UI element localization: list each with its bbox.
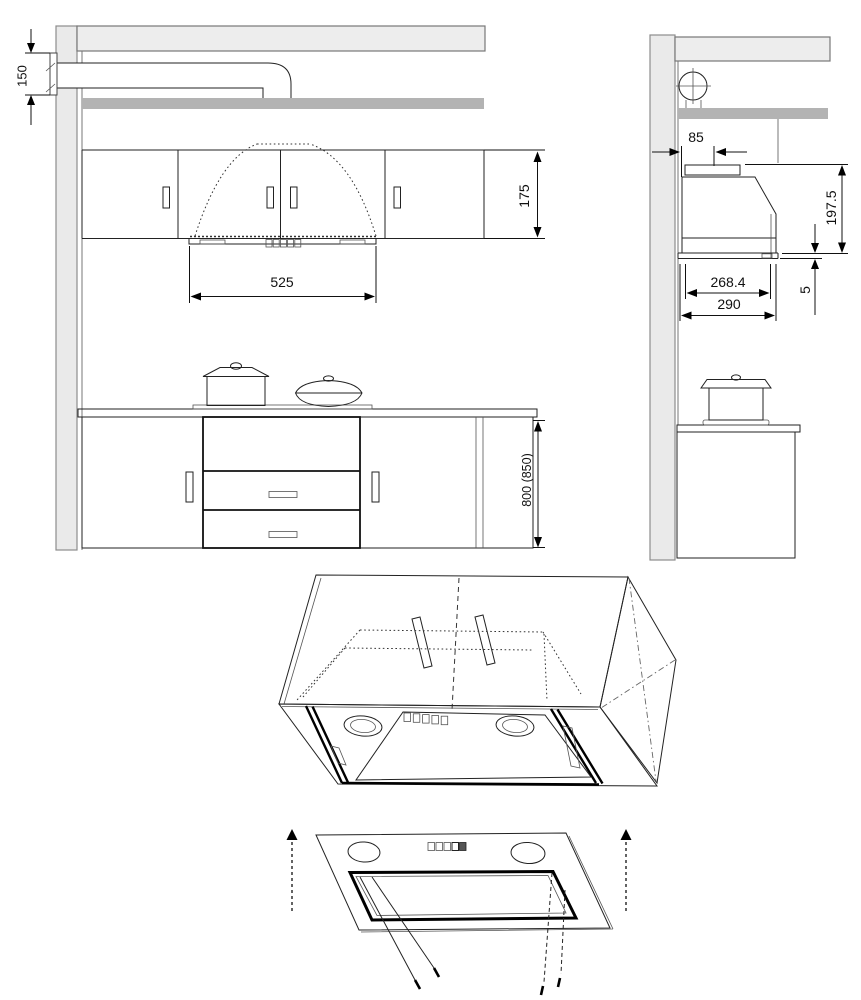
dim-175-extension-lines (484, 150, 545, 239)
lamp-outer-ring (495, 714, 535, 738)
dim-268-arrow-right (759, 289, 770, 297)
lamp-ring (510, 841, 545, 864)
lamp-inner-ring (350, 718, 376, 734)
dim-175-arrow-up (534, 152, 542, 163)
dim-800-arrow-down (534, 537, 542, 548)
screw-tip (541, 986, 543, 995)
wok-pan (296, 376, 363, 407)
duct-outline-bottom (57, 88, 263, 98)
drawer-unit (203, 417, 360, 548)
cabinet-right-face (600, 577, 676, 783)
dim-290-label: 290 (717, 296, 741, 312)
control-button (273, 240, 279, 248)
control-button (413, 714, 420, 723)
underside-outline (279, 704, 657, 786)
dim-upper-cabinet-height: 175 (484, 150, 545, 239)
frame-strip-bottom (342, 783, 599, 785)
dim-800-label: 800 (850) (520, 453, 534, 507)
hidden-hood-dotted (297, 630, 581, 701)
up-arrow-left (287, 829, 298, 840)
cabinet-left-edge-double (284, 578, 321, 704)
dim-bottom-gap: 5 (780, 224, 822, 315)
right-face-diagonals (601, 578, 675, 781)
door-handle (186, 472, 193, 502)
filter-frame (350, 872, 576, 921)
frame-strip-left (306, 706, 349, 784)
lamp-right (495, 714, 535, 738)
control-button (432, 715, 439, 724)
pot-lid-knob (231, 363, 242, 369)
control-buttons-iso (404, 713, 448, 725)
base-cabinet (82, 417, 533, 548)
front-soffit (82, 98, 484, 109)
control-button (295, 240, 301, 248)
dim-268-arrow-left (687, 289, 698, 297)
control-buttons (266, 240, 301, 248)
dim-197-label: 197.5 (823, 190, 839, 225)
drawer-handle (269, 492, 297, 498)
control-button (404, 713, 411, 722)
worktop (78, 409, 537, 417)
dim-290-arrow-left (681, 312, 692, 320)
door-handle (291, 187, 298, 208)
front-wall (56, 26, 77, 550)
dim-body-depth: 268.4 (686, 264, 771, 299)
control-button (423, 715, 430, 724)
screw-tip (434, 968, 439, 977)
control-button (444, 843, 451, 851)
base-cabinet-body (82, 417, 533, 548)
hood-side-profile (678, 165, 778, 259)
upper-cabinets (82, 150, 484, 239)
side-wall (650, 35, 675, 560)
dim-800-extension-lines (533, 421, 545, 548)
dim-150-arrow-up (27, 95, 35, 105)
screw-leader (561, 890, 565, 974)
dim-150-label: 150 (15, 65, 30, 87)
screw-leader (372, 877, 434, 968)
dim-525-arrow-right (365, 293, 376, 301)
installation-diagram: 150 (0, 0, 861, 1000)
drawer-dividers (203, 471, 360, 510)
control-button (428, 843, 435, 851)
dim-cutout-width: 525 (190, 246, 377, 303)
dim-525-arrow-left (191, 293, 202, 301)
control-button (452, 843, 459, 851)
filter-clip-left (200, 240, 225, 244)
door-handle (412, 617, 432, 668)
control-button (288, 240, 294, 248)
drawer-handle (269, 532, 297, 538)
dim-85-extension-lines (682, 146, 715, 177)
control-button (441, 716, 448, 725)
pot-base (703, 420, 769, 425)
front-duct (46, 53, 291, 98)
frame-strip-right (551, 709, 603, 784)
duct-hole-crosshair (676, 68, 711, 104)
screw-tip (558, 978, 560, 987)
side-worktop-area (677, 375, 800, 558)
hood-hidden-outline (190, 144, 376, 237)
pot-body (709, 388, 763, 420)
canopy-right-slant (310, 144, 376, 236)
up-arrow-right (621, 829, 632, 840)
duct-body (57, 63, 291, 98)
dim-5-arrow-up (811, 259, 819, 269)
dim-175-arrow-down (534, 227, 542, 238)
dim-290-arrow-right (765, 312, 776, 320)
dim-85-arrow-left (716, 148, 727, 156)
lamp-left (343, 714, 383, 738)
side-soffit (678, 108, 828, 119)
filter-clip-right (340, 240, 365, 244)
screw-leader (544, 873, 552, 982)
upper-cabinet-dividers (82, 150, 484, 239)
dim-525-label: 525 (270, 274, 294, 290)
side-base-cabinet (677, 432, 795, 558)
front-view: 150 (15, 26, 546, 550)
door-handle (394, 187, 401, 208)
dim-wall-duct-height: 150 (15, 29, 51, 125)
dim-800-arrow-up (534, 421, 542, 432)
control-button (436, 843, 443, 851)
worktop-and-cookware (78, 363, 537, 417)
lamp-outer-ring (343, 714, 383, 738)
lamp-left (347, 841, 380, 863)
lamp-right (510, 841, 545, 864)
hood-body (682, 177, 776, 253)
duct-wall-plate (50, 53, 57, 95)
dim-268-label: 268.4 (710, 274, 745, 290)
filter-panel-outline (356, 712, 591, 780)
diagram-svg: 150 (0, 0, 861, 1000)
side-worktop (677, 425, 800, 432)
pot-body (207, 377, 265, 406)
side-ceiling (675, 37, 830, 61)
mounting-flange (685, 165, 740, 175)
door-handle (475, 615, 495, 665)
hood-dotted-outline (297, 630, 581, 701)
upper-cabinet-horizontals (82, 150, 484, 239)
screw-leader-lines (360, 873, 565, 995)
door-handle (372, 472, 379, 502)
hood-bottom-front (189, 239, 376, 248)
dim-197-arrow-down (838, 243, 846, 254)
canopy-left-slant (195, 144, 257, 236)
control-buttons-panel (428, 843, 466, 851)
door-split-line (452, 578, 459, 710)
cabinet-end-panel (476, 417, 483, 548)
filter-frame-inner (356, 876, 566, 916)
tall-pot (203, 363, 269, 406)
duct-hole (676, 68, 711, 108)
filter-removal-view (287, 829, 632, 995)
side-pot (701, 375, 771, 425)
screw-tip (415, 980, 420, 989)
dim-5-arrow-down (811, 243, 819, 253)
duct-collar (686, 100, 701, 108)
dim-85-label: 85 (688, 129, 704, 145)
pot-lid (701, 380, 771, 389)
dim-150-arrow-down (27, 43, 35, 53)
lamp-inner-ring (502, 718, 528, 734)
control-button (280, 240, 286, 248)
dim-5-label: 5 (797, 286, 813, 294)
control-button (266, 240, 272, 248)
door-handle (267, 187, 274, 208)
panel-clip (762, 254, 772, 258)
side-view: 85 197.5 5 268.4 (650, 35, 848, 560)
door-handle (163, 187, 170, 208)
hood-underside (279, 704, 657, 786)
lamp-ring (347, 841, 380, 863)
control-button (460, 843, 467, 851)
dim-hood-height: 197.5 (745, 165, 848, 254)
front-ceiling (77, 26, 485, 51)
dim-197-arrow-up (838, 165, 846, 176)
dim-175-label: 175 (516, 184, 532, 208)
isometric-hood-view (279, 575, 676, 786)
